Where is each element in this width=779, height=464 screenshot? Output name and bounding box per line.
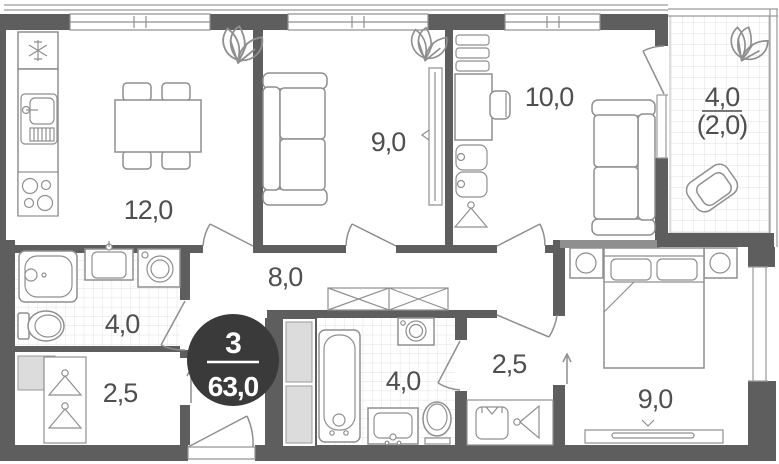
- hanger-icon: [455, 202, 487, 227]
- living-room-window: [288, 14, 428, 30]
- bedroom: 9,0: [570, 248, 737, 443]
- area-label-balcony-counted: (2,0): [697, 110, 748, 140]
- area-label-kitchen-living: 12,0: [124, 195, 173, 225]
- pillow-icon: [657, 259, 697, 280]
- desk-chair-icon: [490, 91, 510, 119]
- area-label-living-room: 9,0: [371, 127, 406, 157]
- toilet-icon: [423, 402, 451, 444]
- kitchen-sink-icon: [21, 94, 57, 144]
- balcony-door-arc: [643, 46, 664, 94]
- chair-icon: [162, 83, 190, 101]
- hall-door-arc: [497, 315, 557, 337]
- sofa-icon: [592, 100, 655, 235]
- washing-machine-icon: [398, 318, 434, 345]
- bedroom-door-arrow: [563, 354, 571, 384]
- fridge-icon: [18, 32, 58, 69]
- tv-console-icon: [585, 420, 723, 443]
- shaft-box: [286, 386, 312, 443]
- room-living: 9,0: [263, 28, 450, 205]
- hall-closet-icon: [467, 400, 553, 445]
- area-label-hallway: 8,0: [268, 262, 303, 292]
- shaft-box: [286, 322, 312, 382]
- wardrobe-closet-icon: [44, 357, 86, 443]
- sink-icon: [368, 408, 418, 445]
- area-label-bathroom: 4,0: [105, 309, 140, 339]
- tv-panel-icon: [422, 68, 442, 205]
- bathtub-icon: [319, 330, 360, 442]
- area-label-hall: 2,5: [492, 349, 527, 379]
- chair-icon: [123, 151, 151, 169]
- bathtub-icon: [19, 251, 77, 302]
- bedroom-window: [748, 267, 768, 381]
- kitchen-window: [70, 14, 210, 30]
- entrance-door-arc: [188, 416, 255, 459]
- balcony-inner-window: [657, 95, 668, 158]
- area-label-balcony: 4,0: [705, 82, 740, 112]
- floor-plan: 12,0 9,0: [0, 0, 779, 464]
- desk-icon: [455, 74, 510, 140]
- sofa-icon: [263, 73, 327, 205]
- pillow-icon: [611, 259, 651, 280]
- washing-machine-icon: [138, 249, 180, 287]
- baskets-icon: [456, 145, 487, 197]
- hall-room: 2,5: [467, 349, 553, 445]
- toilet-icon: [18, 311, 64, 341]
- area-label-wardrobe: 2,5: [103, 378, 138, 408]
- plant-icon: [412, 28, 450, 65]
- double-bed-icon: [604, 248, 704, 368]
- room-10: 10,0: [455, 35, 655, 235]
- service-shafts: [282, 318, 316, 447]
- badge-rooms-count: 3: [225, 327, 241, 360]
- badge-total-area: 63,0: [208, 371, 259, 402]
- hallway: 8,0: [268, 262, 448, 310]
- wardrobe-room: 2,5: [18, 356, 137, 443]
- apartment-badge: 3 63,0: [187, 314, 279, 406]
- chair-icon: [162, 151, 190, 169]
- nightstand-icon: [570, 248, 603, 278]
- chair-icon: [123, 83, 151, 101]
- stove-icon: [18, 172, 58, 216]
- room-10-window: [505, 14, 600, 30]
- area-label-bathroom-2: 4,0: [386, 366, 421, 396]
- room-kitchen-living: 12,0: [18, 26, 266, 225]
- area-label-room-10: 10,0: [525, 82, 574, 112]
- room-10-door-arc: [497, 224, 545, 246]
- kitchen-door-arc: [203, 224, 253, 246]
- living-room-door-arc: [346, 224, 396, 246]
- area-label-bedroom: 9,0: [638, 384, 673, 414]
- folded-shirt-icon: [476, 407, 508, 439]
- nightstand-icon: [704, 248, 737, 278]
- shelves-icon: [456, 35, 489, 71]
- dining-table-icon: [115, 83, 201, 169]
- hall-wardrobe-icon: [328, 288, 448, 310]
- floor-plan-page: 12,0 9,0: [0, 0, 779, 464]
